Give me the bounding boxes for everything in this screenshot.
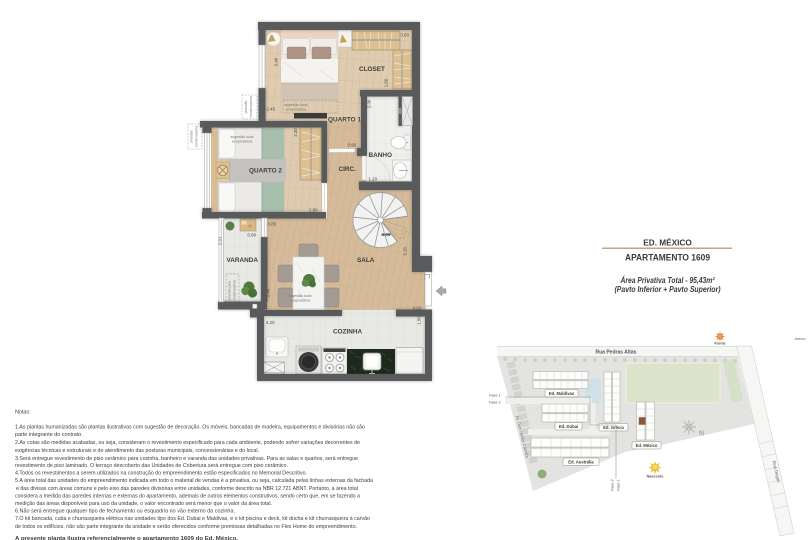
svg-text:VARANDA: VARANDA — [227, 257, 259, 264]
svg-text:condensadora: condensadora — [249, 96, 253, 118]
svg-text:Notas:: Notas: — [15, 410, 31, 416]
svg-text:Ed. Grécia: Ed. Grécia — [603, 425, 624, 430]
svg-text:1.50: 1.50 — [417, 316, 422, 325]
svg-text:Ed. Dubai: Ed. Dubai — [559, 424, 578, 429]
svg-text:4.Todos os revestimentos a ser: 4.Todos os revestimentos a serem utiliza… — [15, 470, 307, 476]
svg-text:Fase 2: Fase 2 — [611, 479, 615, 491]
svg-text:evaporadora: evaporadora — [232, 140, 252, 144]
svg-text:Rua Pedras Altas: Rua Pedras Altas — [596, 350, 637, 356]
svg-text:Área Privativa Total - 95,43m²: Área Privativa Total - 95,43m² — [620, 275, 715, 285]
svg-text:APARTAMENTO 1609: APARTAMENTO 1609 — [625, 253, 710, 263]
svg-text:Nascente: Nascente — [647, 475, 664, 479]
svg-text:A presente planta ilustra refe: A presente planta ilustra referencialmen… — [15, 536, 238, 540]
svg-text:4.20: 4.20 — [266, 320, 275, 325]
svg-text:Poente: Poente — [714, 342, 725, 346]
svg-text:condensadora: condensadora — [195, 126, 199, 148]
svg-text:SALA: SALA — [357, 257, 375, 264]
svg-text:3.85: 3.85 — [268, 222, 277, 227]
svg-text:BANHO: BANHO — [369, 152, 392, 159]
svg-text:previsão: previsão — [190, 130, 194, 143]
svg-text:condensadora: condensadora — [233, 280, 237, 302]
svg-text:COZINHA: COZINHA — [333, 329, 362, 336]
svg-text:2.45: 2.45 — [267, 107, 276, 112]
svg-text:0.90: 0.90 — [348, 143, 357, 148]
svg-text:5.A área total das unidades do: 5.A área total das unidades do empreendi… — [15, 478, 373, 484]
svg-text:3.15: 3.15 — [403, 247, 408, 256]
svg-text:previsão para: previsão para — [228, 281, 232, 302]
svg-text:4.20: 4.20 — [413, 306, 422, 311]
svg-text:7.O kit bancada, cuba e churra: 7.O kit bancada, cuba e churrasqueira el… — [15, 516, 370, 522]
svg-text:CIRC.: CIRC. — [339, 166, 357, 173]
svg-text:Ed. México: Ed. México — [636, 443, 658, 448]
svg-text:parte integrante do contrato.: parte integrante do contrato. — [15, 432, 83, 438]
svg-text:Ed. Maldivas: Ed. Maldivas — [549, 391, 575, 396]
svg-text:medição das áreas disponíveis: medição das áreas disponíveis para uso d… — [15, 501, 272, 507]
svg-text:revestimento de piso laminado.: revestimento de piso laminado. O terraço… — [15, 463, 288, 469]
svg-text:Fase 1: Fase 1 — [617, 479, 621, 491]
svg-text:N: N — [699, 431, 704, 438]
svg-text:1.20: 1.20 — [369, 177, 378, 182]
svg-text:2.40: 2.40 — [266, 288, 271, 297]
svg-text:Fase 1: Fase 1 — [489, 394, 501, 398]
svg-text:sugestão local: sugestão local — [285, 103, 308, 107]
svg-text:Fase 2: Fase 2 — [489, 401, 501, 405]
svg-text:exigências técnicas e estrutur: exigências técnicas e estruturais e do a… — [15, 448, 259, 454]
svg-text:QUARTO 2: QUARTO 2 — [249, 168, 282, 175]
svg-text:Ed. Austrália: Ed. Austrália — [568, 460, 594, 465]
svg-text:e das divisas com áreas comuns: e das divisas com áreas comuns e pelo ei… — [16, 486, 358, 492]
svg-text:1.As plantas humanizadas são p: 1.As plantas humanizadas são plantas ilu… — [15, 425, 365, 431]
svg-text:1.60: 1.60 — [384, 78, 389, 87]
svg-text:Acesso: Acesso — [794, 337, 805, 341]
svg-text:sugestão local: sugestão local — [289, 294, 312, 298]
svg-text:0.90: 0.90 — [248, 233, 257, 238]
svg-text:ED. MÉXICO: ED. MÉXICO — [643, 238, 692, 247]
svg-text:de todos os edifícios, não são: de todos os edifícios, não são parte int… — [15, 524, 357, 530]
svg-text:considera a medida das paredes: considera a medida das paredes internas … — [15, 493, 360, 499]
svg-text:QUARTO 1: QUARTO 1 — [328, 117, 361, 124]
svg-text:previsão: previsão — [244, 100, 248, 113]
svg-text:sugestão local: sugestão local — [231, 135, 254, 139]
svg-text:2.31: 2.31 — [218, 236, 223, 245]
svg-text:evaporadora: evaporadora — [290, 299, 310, 303]
svg-text:2.30: 2.30 — [367, 99, 372, 108]
svg-text:(Pavto Inferior + Pavto Superi: (Pavto Inferior + Pavto Superior) — [615, 285, 721, 294]
svg-text:2.90: 2.90 — [309, 208, 318, 213]
svg-text:2.30: 2.30 — [293, 128, 298, 137]
svg-text:CLOSET: CLOSET — [359, 66, 385, 73]
svg-text:6.Não será entregue qualquer t: 6.Não será entregue qualquer tipo de fec… — [15, 508, 235, 514]
svg-text:2.As cotas são medidas acabada: 2.As cotas são medidas acabadas, ou seja… — [15, 440, 360, 446]
svg-text:evaporadora: evaporadora — [286, 108, 306, 112]
svg-text:3.Será entregue revestimento d: 3.Será entregue revestimento de piso cer… — [15, 456, 358, 462]
svg-text:2.40: 2.40 — [274, 57, 279, 66]
svg-text:3.80: 3.80 — [401, 33, 410, 38]
